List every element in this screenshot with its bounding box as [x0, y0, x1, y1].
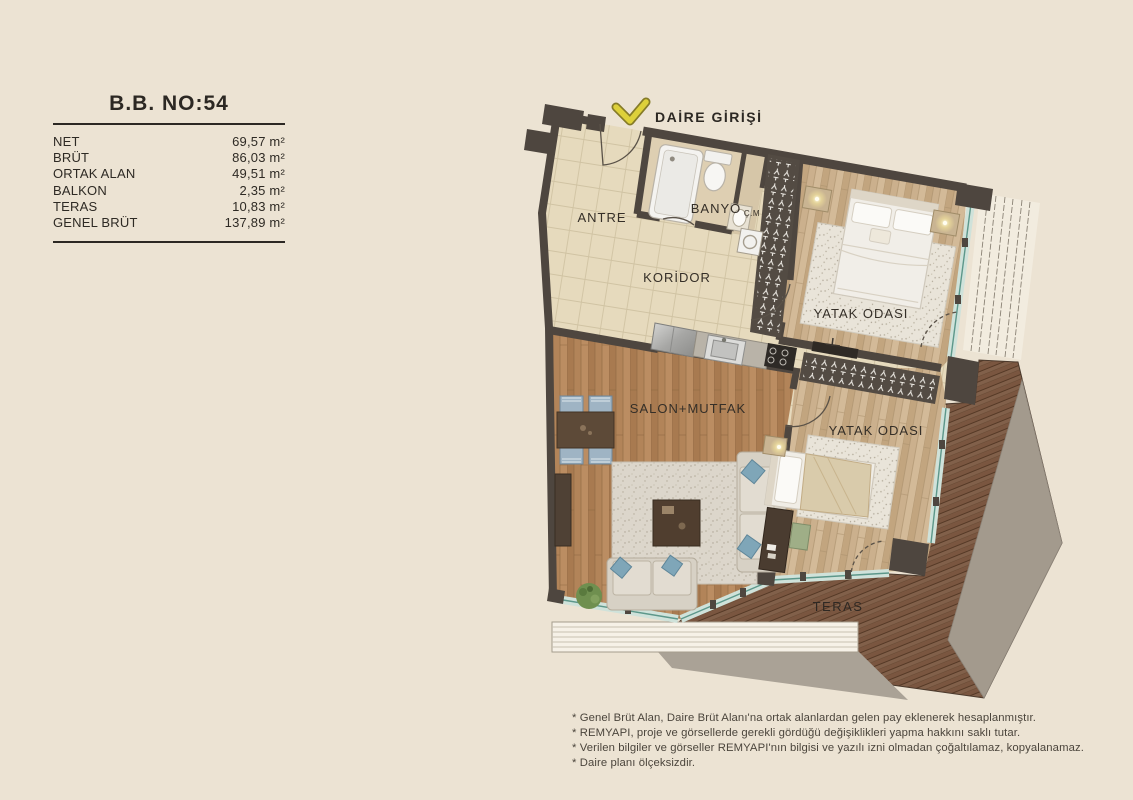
- washing-machine-icon: [737, 228, 763, 255]
- room-label-bedroom1: YATAK ODASI: [814, 306, 909, 321]
- bench: [789, 523, 810, 550]
- balcony-steps: [552, 622, 858, 652]
- footnotes: * Genel Brüt Alan, Daire Brüt Alanı'na o…: [572, 711, 1117, 771]
- room-label-bedroom2: YATAK ODASI: [829, 423, 924, 438]
- coffee-table: [653, 500, 700, 546]
- floor-plan-page: B.B. NO:54 NET69,57 m² BRÜT86,03 m² ORTA…: [0, 0, 1133, 800]
- floor-plan-drawing: DAİRE GİRİŞİ ANTRE BANYO Ç.M KORİDOR YAT…: [0, 0, 1133, 800]
- room-label-banyo: BANYO: [691, 201, 742, 216]
- room-label-cm: Ç.M: [744, 209, 760, 218]
- room-label-salon: SALON+MUTFAK: [630, 401, 746, 416]
- stove-icon: [764, 343, 797, 371]
- sofa: [607, 555, 697, 610]
- louver-screen: [963, 193, 1040, 360]
- plant-icon: [576, 583, 602, 609]
- room-label-koridor: KORİDOR: [643, 270, 711, 285]
- tv-unit: [555, 474, 571, 546]
- room-label-teras: TERAS: [813, 599, 864, 614]
- entrance-label: DAİRE GİRİŞİ: [655, 109, 762, 125]
- room-label-antre: ANTRE: [577, 210, 626, 225]
- footnote-line: * Daire planı ölçeksizdir.: [572, 756, 1117, 771]
- bed: [833, 189, 938, 309]
- entrance-arrow-icon: [616, 102, 646, 121]
- footnote-line: * Genel Brüt Alan, Daire Brüt Alanı'na o…: [572, 711, 1117, 726]
- footnote-line: * Verilen bilgiler ve görseller REMYAPI'…: [572, 741, 1117, 756]
- footnote-line: * REMYAPI, proje ve görsellerde gerekli …: [572, 726, 1117, 741]
